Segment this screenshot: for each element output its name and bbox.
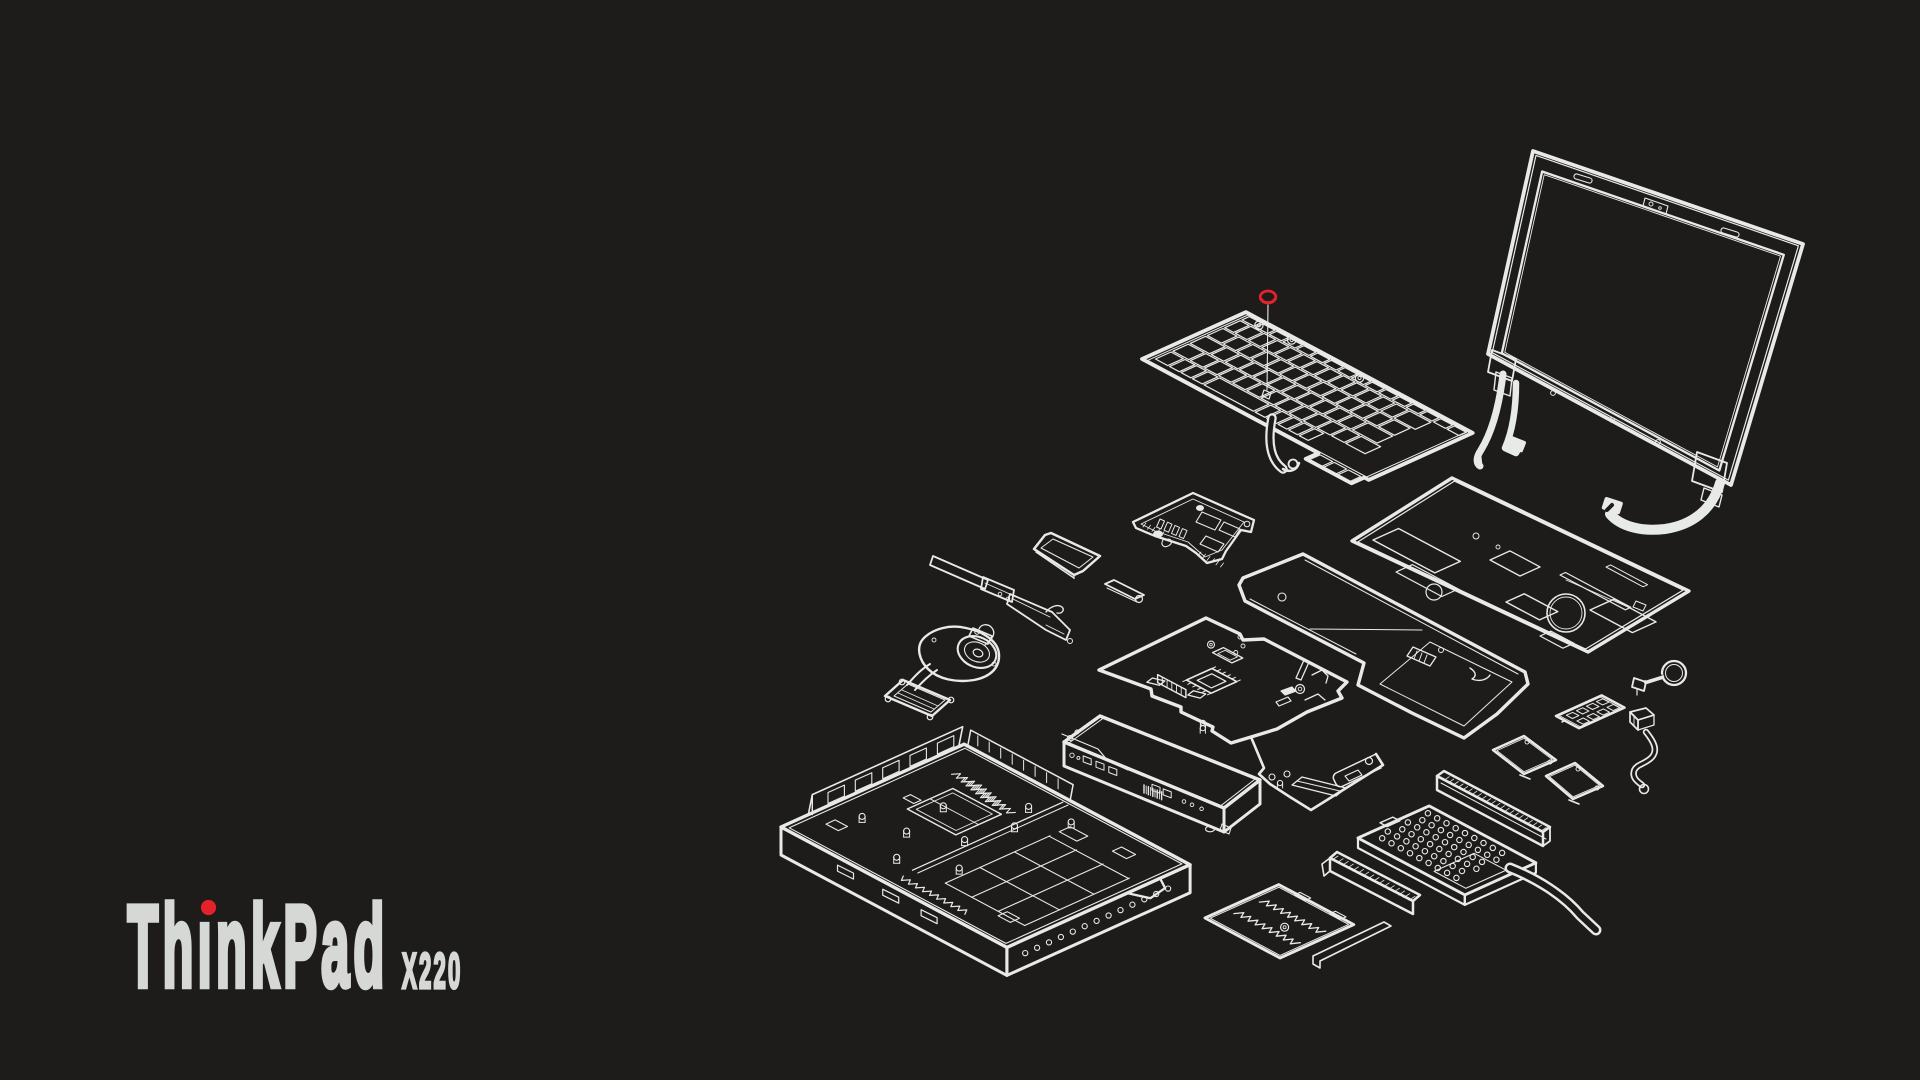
svg-text:ThınkPad: ThınkPad	[128, 882, 389, 1010]
svg-text:X220: X220	[402, 944, 463, 1000]
